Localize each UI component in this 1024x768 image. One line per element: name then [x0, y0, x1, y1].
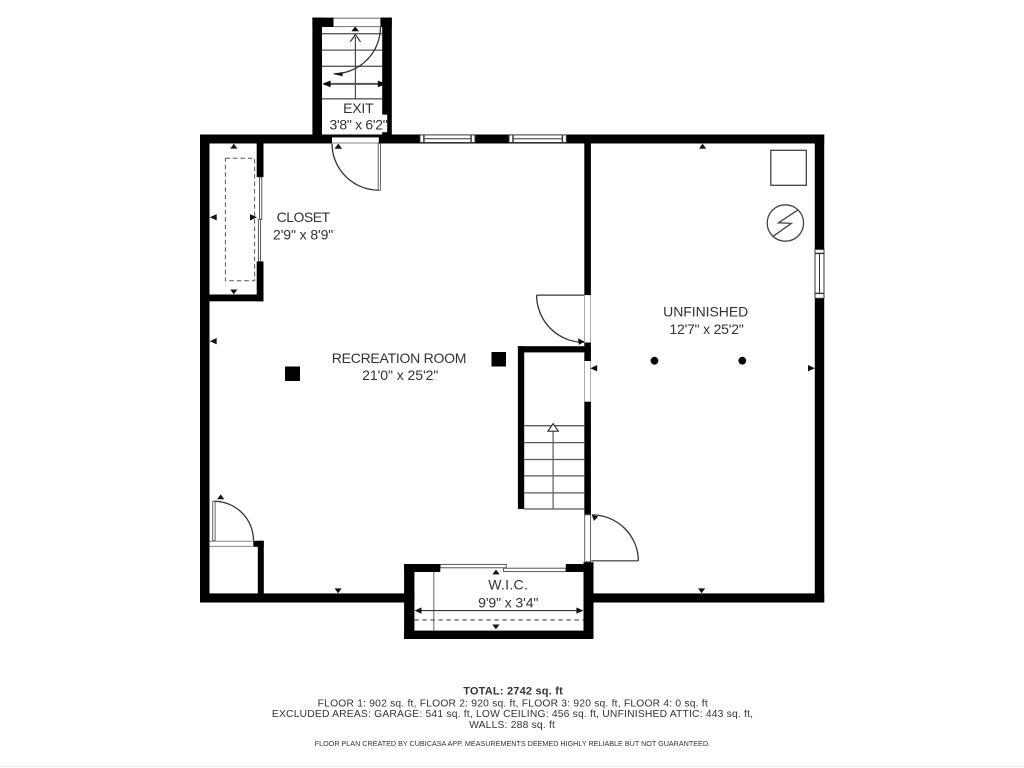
svg-text:EXIT: EXIT: [343, 100, 374, 116]
svg-text:FLOOR 1: 902 sq. ft, FLOOR 2:: FLOOR 1: 902 sq. ft, FLOOR 2: 920 sq. ft…: [318, 698, 708, 709]
svg-text:12'7" x 25'2": 12'7" x 25'2": [669, 321, 743, 337]
svg-text:21'0" x 25'2": 21'0" x 25'2": [362, 367, 438, 383]
svg-text:3'8" x 6'2": 3'8" x 6'2": [330, 117, 388, 133]
svg-text:EXCLUDED AREAS: GARAGE: 541 sq: EXCLUDED AREAS: GARAGE: 541 sq. ft, LOW …: [272, 709, 753, 720]
svg-text:UNFINISHED: UNFINISHED: [663, 303, 748, 319]
svg-text:TOTAL: 2742 sq. ft: TOTAL: 2742 sq. ft: [463, 686, 563, 698]
svg-text:RECREATION ROOM: RECREATION ROOM: [332, 350, 466, 366]
svg-text:2'9" x 8'9": 2'9" x 8'9": [273, 227, 333, 243]
svg-text:WALLS: 288 sq. ft: WALLS: 288 sq. ft: [469, 720, 555, 731]
svg-text:CLOSET: CLOSET: [277, 209, 331, 225]
svg-text:FLOOR PLAN CREATED BY CUBICASA: FLOOR PLAN CREATED BY CUBICASA APP. MEAS…: [315, 739, 710, 748]
svg-text:9'9" x 3'4": 9'9" x 3'4": [478, 595, 538, 611]
svg-text:W.I.C.: W.I.C.: [488, 576, 528, 592]
